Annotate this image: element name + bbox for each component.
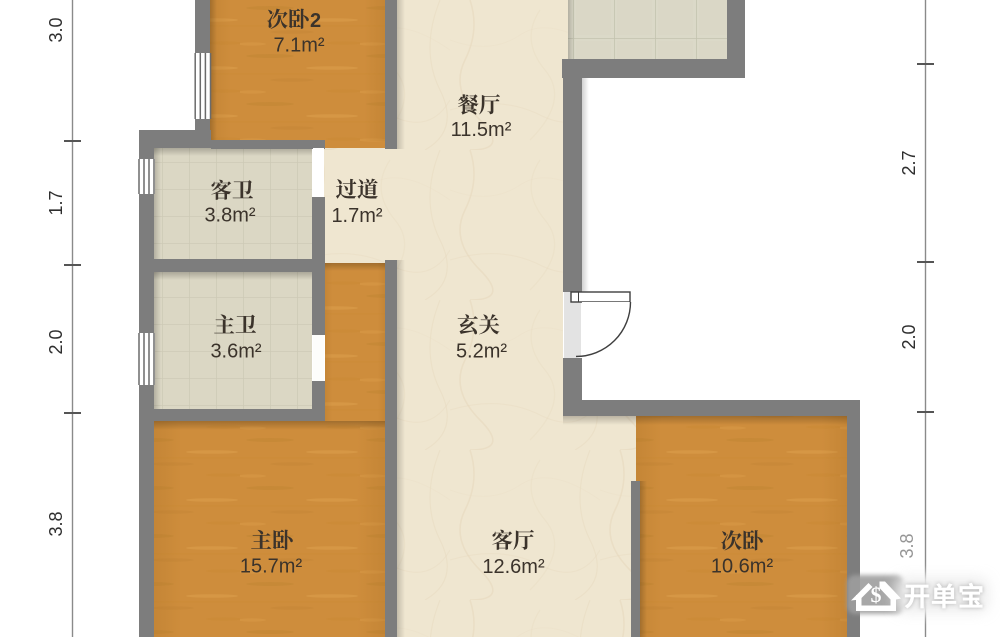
svg-text:3.8: 3.8: [897, 533, 917, 558]
svg-text:2.0: 2.0: [46, 329, 66, 354]
svg-text:2: 2: [310, 10, 321, 32]
svg-text:3.8: 3.8: [46, 511, 66, 536]
svg-text:2.7: 2.7: [899, 150, 919, 175]
svg-text:12.6m²: 12.6m²: [482, 556, 545, 578]
svg-text:3.0: 3.0: [46, 17, 66, 42]
svg-text:10.6m²: 10.6m²: [711, 555, 774, 577]
svg-text:1.7m²: 1.7m²: [331, 205, 382, 227]
svg-text:5.2m²: 5.2m²: [456, 340, 507, 362]
svg-text:3.8m²: 3.8m²: [204, 204, 255, 226]
svg-text:11.5m²: 11.5m²: [451, 119, 512, 141]
svg-text:7.1m²: 7.1m²: [273, 34, 324, 56]
svg-text:1.7: 1.7: [46, 190, 66, 215]
svg-text:3.6m²: 3.6m²: [210, 340, 261, 362]
svg-text:2.0: 2.0: [899, 324, 919, 349]
svg-text:15.7m²: 15.7m²: [240, 555, 303, 577]
